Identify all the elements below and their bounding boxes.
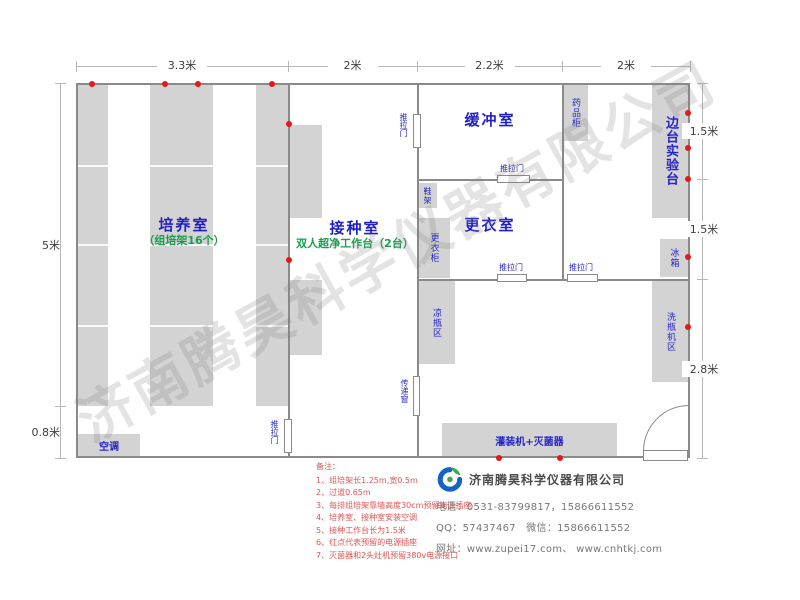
clean-bench-1 — [290, 125, 322, 218]
side-lab-bench-label: 边台实验台 — [652, 84, 689, 218]
company-website: 网址：www.zupei17.com、 www.cnhtkj.com — [436, 540, 662, 555]
filling-machine-sterilizer-label: 灌装机+灭菌器 — [442, 423, 617, 457]
wall — [530, 179, 564, 181]
wall — [288, 83, 290, 420]
power-outlet-dot — [685, 176, 691, 182]
company-block: 济南腾昊科学仪器有限公司 电话：0531-83799817，1586661155… — [436, 466, 662, 555]
power-outlet-dot — [89, 81, 95, 87]
sliding-door-buffer-label: 推拉门 — [500, 164, 524, 173]
power-outlet-dot — [557, 455, 563, 461]
company-logo-icon — [436, 466, 462, 492]
dim-tick — [697, 83, 708, 84]
dim-tick — [55, 83, 66, 84]
entry-door-swing-arc — [643, 405, 689, 451]
shoe-rack-label: 鞋架 — [418, 183, 437, 208]
dim-label-left: 5米 — [20, 237, 60, 253]
power-outlet-dot — [685, 324, 691, 330]
power-outlet-dot — [162, 81, 168, 87]
dim-line-left — [60, 83, 61, 458]
pass-through-window — [413, 376, 420, 416]
clean-bench-2 — [290, 280, 322, 355]
dim-line-right — [702, 83, 703, 458]
inoculation-room-sublabel: 双人超净工作台（2台） — [260, 235, 450, 251]
dim-tick — [76, 61, 77, 72]
sliding-door-culture-inoculation-label: 推拉门 — [270, 420, 279, 444]
dim-label-left: 0.8米 — [20, 424, 60, 440]
wall — [417, 179, 497, 181]
rack-shelf-divider — [76, 165, 108, 167]
dressing-room-label: 更衣室 — [410, 214, 570, 235]
power-outlet-dot — [496, 455, 502, 461]
buffer-room-label: 缓冲室 — [410, 109, 570, 130]
power-outlet-dot — [195, 81, 201, 87]
wall — [76, 83, 690, 85]
dim-label-right: 1.5米 — [682, 221, 726, 237]
culture-room-sublabel: （组培架16个） — [89, 232, 279, 248]
dim-tick — [55, 406, 66, 407]
dim-tick — [697, 458, 708, 459]
bottle-cooling-area-label: 凉瓶区 — [418, 281, 455, 364]
dim-tick — [690, 61, 691, 72]
dim-label-top: 2米 — [328, 58, 378, 73]
wall — [76, 83, 78, 458]
sliding-door-buffer — [497, 175, 530, 183]
entry-door-leaf — [643, 450, 688, 461]
company-phone: 电话：0531-83799817，15866611552 — [436, 498, 662, 513]
sliding-door-dressing-1 — [497, 274, 527, 282]
wall — [527, 279, 567, 281]
power-outlet-dot — [685, 145, 691, 151]
dim-tick — [288, 61, 289, 72]
wall — [417, 415, 419, 458]
sliding-door-dressing-2 — [567, 274, 598, 282]
rack-shelf-divider — [150, 165, 213, 167]
rack-shelf-divider — [256, 325, 288, 327]
dim-tick — [697, 179, 708, 180]
dim-label-top: 3.3米 — [157, 58, 207, 73]
power-outlet-dot — [286, 257, 292, 263]
dim-label-top: 2.2米 — [465, 58, 515, 73]
sliding-door-dressing-2-label: 推拉门 — [569, 263, 593, 272]
dim-tick — [562, 61, 563, 72]
power-outlet-dot — [269, 81, 275, 87]
power-outlet-dot — [685, 254, 691, 260]
dim-label-top: 2米 — [601, 58, 651, 73]
sliding-door-dressing-1-label: 推拉门 — [499, 263, 523, 272]
power-outlet-dot — [685, 110, 691, 116]
company-qq-wechat: QQ：57437467 微信：15866611552 — [436, 519, 662, 534]
sliding-door-inoculation-buffer-label: 推拉门 — [399, 113, 408, 137]
rack-shelf-divider — [76, 325, 108, 327]
dim-tick — [55, 458, 66, 459]
pass-through-window-label: 传递窗 — [400, 379, 409, 403]
dim-tick — [697, 279, 708, 280]
bottle-washing-area-label: 洗瓶机区 — [652, 281, 689, 382]
rack-shelf-divider — [256, 165, 288, 167]
sliding-door-culture-inoculation — [284, 419, 292, 453]
air-conditioner-label: 空调 — [78, 434, 140, 457]
rack-shelf-divider — [150, 325, 213, 327]
company-name: 济南腾昊科学仪器有限公司 — [469, 471, 625, 488]
fridge-label: 冰箱 — [660, 239, 688, 277]
dim-tick — [417, 61, 418, 72]
power-outlet-dot — [286, 121, 292, 127]
